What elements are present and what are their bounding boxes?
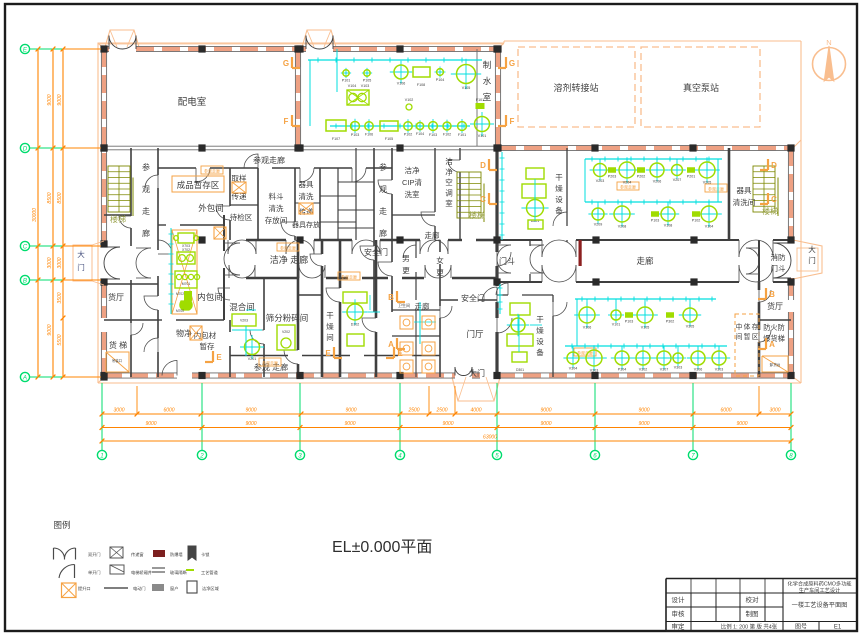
- svg-text:防火防: 防火防: [763, 323, 785, 332]
- svg-text:D: D: [771, 161, 777, 170]
- svg-text:V101: V101: [478, 134, 486, 138]
- svg-text:V203: V203: [596, 179, 604, 183]
- svg-text:净: 净: [445, 167, 453, 177]
- svg-text:比例 1: 200 第 版 共4张: 比例 1: 200 第 版 共4张: [721, 623, 778, 631]
- svg-text:配电室: 配电室: [178, 96, 207, 108]
- svg-text:门厅: 门厅: [466, 329, 484, 339]
- svg-text:间: 间: [326, 333, 334, 342]
- svg-text:电梯轿厢井: 电梯轿厢井: [131, 569, 152, 576]
- svg-text:8500: 8500: [57, 192, 63, 203]
- svg-text:外包间: 外包间: [198, 203, 224, 213]
- svg-text:大: 大: [77, 249, 85, 259]
- svg-text:器具: 器具: [737, 186, 752, 195]
- svg-text:F101: F101: [458, 133, 466, 137]
- svg-text:燥: 燥: [555, 184, 563, 193]
- svg-text:3500: 3500: [57, 292, 63, 303]
- svg-text:观: 观: [142, 185, 150, 194]
- svg-text:V206: V206: [653, 180, 661, 184]
- svg-text:待检区: 待检区: [230, 212, 253, 222]
- svg-text:F107: F107: [332, 137, 340, 141]
- svg-text:F108: F108: [417, 83, 425, 87]
- svg-text:空: 空: [445, 177, 453, 187]
- svg-text:9000: 9000: [638, 421, 649, 427]
- svg-text:单开门: 单开门: [88, 569, 101, 576]
- svg-text:M702: M702: [176, 292, 184, 296]
- svg-text:参: 参: [142, 162, 150, 172]
- svg-text:图例: 图例: [53, 520, 70, 530]
- svg-text:走: 走: [142, 207, 150, 216]
- svg-text:图号: 图号: [795, 624, 807, 631]
- svg-text:设: 设: [536, 336, 544, 346]
- svg-text:EL±0.000平面: EL±0.000平面: [332, 539, 432, 556]
- svg-text:参观走廊: 参观走廊: [262, 360, 278, 366]
- svg-text:走廊: 走廊: [425, 230, 440, 240]
- svg-text:E: E: [216, 353, 222, 362]
- svg-text:V104: V104: [705, 225, 713, 229]
- svg-text:清洗: 清洗: [299, 191, 314, 201]
- svg-text:参观走廊: 参观走廊: [280, 245, 296, 251]
- svg-text:防爆墙: 防爆墙: [170, 551, 183, 558]
- svg-text:V108: V108: [664, 224, 672, 228]
- svg-text:9000: 9000: [47, 324, 53, 335]
- svg-text:D102: D102: [351, 323, 360, 327]
- svg-text:G: G: [509, 59, 515, 68]
- svg-text:P103: P103: [651, 218, 659, 222]
- svg-text:男: 男: [402, 254, 410, 263]
- svg-text:干: 干: [555, 173, 563, 182]
- svg-text:混合间: 混合间: [229, 302, 255, 312]
- svg-text:一楼工艺设备平面图: 一楼工艺设备平面图: [792, 601, 848, 609]
- svg-text:V105: V105: [641, 326, 649, 330]
- svg-text:洁净: 洁净: [405, 165, 420, 175]
- svg-text:校对: 校对: [746, 595, 760, 604]
- svg-text:V103: V103: [361, 84, 369, 88]
- svg-text:观: 观: [379, 185, 387, 194]
- svg-text:V202: V202: [282, 330, 290, 334]
- svg-text:清洗间: 清洗间: [733, 197, 756, 207]
- svg-text:E: E: [325, 349, 331, 358]
- svg-text:9000: 9000: [57, 94, 63, 105]
- svg-text:F: F: [510, 117, 515, 126]
- svg-text:参观走廊: 参观走廊: [204, 168, 220, 174]
- svg-text:干: 干: [326, 311, 334, 320]
- svg-text:大: 大: [808, 244, 816, 254]
- svg-text:器具存放: 器具存放: [292, 220, 320, 229]
- svg-text:P201: P201: [687, 174, 695, 178]
- svg-text:7: 7: [691, 453, 695, 460]
- svg-text:卸货台: 卸货台: [770, 362, 781, 367]
- svg-text:F101: F101: [476, 98, 484, 102]
- svg-text:9000: 9000: [145, 421, 156, 427]
- svg-text:货厅: 货厅: [767, 301, 783, 311]
- svg-text:C: C: [23, 244, 28, 251]
- svg-text:2500: 2500: [407, 408, 419, 414]
- svg-text:P104: P104: [436, 78, 444, 82]
- svg-text:走廊: 走廊: [415, 301, 430, 311]
- svg-text:6000: 6000: [720, 408, 731, 414]
- svg-text:4: 4: [398, 453, 402, 460]
- svg-text:5500: 5500: [57, 334, 63, 345]
- svg-text:V207: V207: [673, 178, 681, 182]
- svg-text:F106: F106: [365, 133, 373, 137]
- svg-text:N: N: [826, 38, 831, 47]
- svg-text:参观走廊: 参观走廊: [253, 155, 285, 165]
- svg-text:V303: V303: [674, 366, 682, 370]
- svg-text:廊: 廊: [142, 228, 150, 238]
- svg-text:暂存: 暂存: [200, 341, 215, 351]
- svg-text:成品暂存区: 成品暂存区: [177, 180, 220, 190]
- svg-text:3000: 3000: [113, 408, 124, 414]
- svg-text:P105: P105: [363, 79, 371, 83]
- svg-text:P102: P102: [404, 133, 412, 137]
- svg-text:9000: 9000: [736, 421, 747, 427]
- svg-text:9000: 9000: [638, 408, 649, 414]
- svg-text:63000: 63000: [483, 435, 497, 441]
- svg-text:V305: V305: [686, 325, 694, 329]
- svg-text:工艺管道: 工艺管道: [201, 569, 219, 576]
- svg-text:料斗: 料斗: [269, 191, 284, 201]
- svg-text:P101: P101: [342, 79, 350, 83]
- svg-text:备: 备: [555, 205, 563, 215]
- svg-text:A: A: [769, 340, 775, 349]
- svg-text:审核: 审核: [672, 609, 686, 618]
- svg-text:存: 存: [752, 322, 759, 331]
- svg-text:E1: E1: [834, 625, 842, 631]
- svg-text:P102: P102: [692, 218, 700, 222]
- svg-text:参观走廊: 参观走廊: [341, 274, 357, 280]
- svg-text:电动门: 电动门: [133, 585, 146, 592]
- svg-text:吊装口: 吊装口: [112, 358, 122, 363]
- svg-text:A: A: [22, 375, 27, 382]
- svg-text:8: 8: [789, 453, 793, 460]
- svg-text:30000: 30000: [32, 208, 38, 222]
- svg-text:洁净 走廊: 洁净 走廊: [270, 254, 309, 265]
- svg-text:4000: 4000: [470, 408, 481, 414]
- svg-text:审定: 审定: [672, 622, 686, 631]
- svg-text:V208: V208: [618, 225, 626, 229]
- svg-text:内包间: 内包间: [197, 292, 223, 302]
- svg-text:洁净区域: 洁净区域: [202, 585, 220, 592]
- svg-text:女: 女: [436, 255, 444, 265]
- svg-text:V101: V101: [612, 323, 620, 327]
- svg-text:V102: V102: [405, 98, 413, 102]
- svg-text:V104: V104: [348, 84, 356, 88]
- svg-text:B: B: [769, 290, 775, 299]
- svg-text:9000: 9000: [442, 421, 453, 427]
- svg-text:B: B: [388, 293, 394, 302]
- svg-text:筛分粉碎间: 筛分粉碎间: [266, 313, 309, 323]
- svg-text:P202: P202: [637, 174, 645, 178]
- svg-text:门斗: 门斗: [499, 256, 515, 266]
- svg-text:V106: V106: [583, 326, 591, 330]
- svg-text:9000: 9000: [245, 421, 256, 427]
- svg-text:V205: V205: [703, 181, 711, 185]
- svg-text:溶剂转接站: 溶剂转接站: [553, 82, 598, 93]
- svg-text:1: 1: [100, 453, 103, 460]
- svg-text:制: 制: [483, 60, 492, 70]
- svg-text:楼梯: 楼梯: [762, 206, 778, 216]
- svg-text:消防: 消防: [771, 252, 786, 262]
- svg-text:安全门: 安全门: [461, 293, 485, 303]
- svg-text:V304: V304: [569, 367, 577, 371]
- svg-text:廊: 廊: [379, 228, 387, 238]
- svg-text:设计: 设计: [672, 595, 686, 604]
- svg-text:货厅: 货厅: [108, 292, 124, 302]
- svg-text:V307: V307: [660, 368, 668, 372]
- svg-text:走廊: 走廊: [636, 256, 654, 266]
- svg-text:V302: V302: [639, 368, 647, 372]
- svg-text:9000: 9000: [47, 94, 53, 105]
- svg-text:V209: V209: [594, 223, 602, 227]
- svg-text:传递窗: 传递窗: [131, 551, 144, 558]
- svg-text:参: 参: [379, 162, 387, 172]
- svg-text:卫生间: 卫生间: [398, 302, 410, 308]
- svg-text:M701: M701: [182, 282, 191, 286]
- svg-text:3: 3: [298, 453, 302, 460]
- svg-text:P103: P103: [625, 319, 633, 323]
- svg-text:清洗: 清洗: [269, 203, 284, 213]
- svg-text:D301: D301: [516, 368, 524, 372]
- svg-text:V204: V204: [623, 181, 631, 185]
- svg-text:区: 区: [752, 333, 759, 341]
- svg-text:门: 门: [77, 263, 85, 272]
- svg-text:P304: P304: [618, 368, 626, 372]
- svg-text:V201: V201: [248, 357, 256, 361]
- svg-text:提升口: 提升口: [78, 585, 91, 592]
- svg-text:室: 室: [445, 198, 453, 208]
- svg-text:设: 设: [555, 194, 563, 204]
- svg-text:生产车间工艺设计: 生产车间工艺设计: [799, 586, 841, 594]
- svg-text:器具: 器具: [299, 180, 314, 189]
- svg-text:B: B: [23, 278, 27, 285]
- svg-text:M700: M700: [176, 309, 184, 313]
- svg-text:化学合成原料药CMO多功能: 化学合成原料药CMO多功能: [788, 580, 852, 588]
- svg-text:中: 中: [736, 322, 743, 331]
- svg-text:9000: 9000: [540, 408, 551, 414]
- svg-text:门: 门: [808, 256, 816, 265]
- svg-text:制图: 制图: [746, 609, 759, 618]
- svg-text:更: 更: [402, 266, 410, 275]
- svg-text:洁: 洁: [445, 156, 453, 166]
- svg-text:9000: 9000: [345, 408, 356, 414]
- svg-text:F103: F103: [429, 133, 437, 137]
- svg-text:货 梯: 货 梯: [109, 340, 127, 350]
- svg-text:大门: 大门: [469, 368, 485, 378]
- svg-text:V105: V105: [462, 86, 470, 90]
- svg-text:窗户: 窗户: [170, 585, 178, 592]
- svg-text:燥: 燥: [536, 326, 544, 335]
- svg-text:5: 5: [495, 453, 499, 460]
- svg-text:V303: V303: [590, 369, 598, 373]
- svg-text:V203: V203: [240, 319, 248, 323]
- svg-text:C: C: [771, 195, 777, 204]
- svg-text:P302: P302: [666, 319, 674, 323]
- svg-text:F104: F104: [416, 132, 424, 136]
- svg-text:调: 调: [445, 189, 453, 198]
- svg-text:9000: 9000: [245, 408, 256, 414]
- svg-text:D: D: [480, 161, 486, 170]
- svg-text:卡锁: 卡锁: [201, 551, 210, 558]
- svg-text:8500: 8500: [47, 192, 53, 203]
- svg-text:P103: P103: [351, 133, 359, 137]
- svg-text:走: 走: [379, 207, 387, 216]
- svg-text:楼梯: 楼梯: [469, 210, 485, 220]
- svg-text:6000: 6000: [163, 408, 174, 414]
- svg-text:3000: 3000: [47, 257, 53, 268]
- svg-text:玻璃隔断: 玻璃隔断: [170, 569, 188, 576]
- svg-text:参观走廊: 参观走廊: [708, 186, 724, 192]
- svg-text:X702: X702: [182, 248, 190, 252]
- svg-text:间: 间: [736, 333, 743, 341]
- svg-text:体: 体: [744, 322, 751, 331]
- svg-text:真空泵站: 真空泵站: [683, 82, 719, 93]
- svg-text:F: F: [284, 117, 289, 126]
- svg-text:C: C: [480, 195, 486, 204]
- svg-text:存放间: 存放间: [265, 215, 288, 225]
- svg-text:楼梯: 楼梯: [110, 214, 126, 224]
- svg-text:暂: 暂: [744, 332, 751, 341]
- svg-text:3000: 3000: [57, 257, 63, 268]
- svg-text:门斗: 门斗: [771, 264, 786, 273]
- svg-text:洗室: 洗室: [405, 189, 420, 199]
- svg-text:V306: V306: [694, 368, 702, 372]
- svg-text:安全门: 安全门: [364, 247, 388, 257]
- svg-text:双开门: 双开门: [88, 551, 101, 558]
- svg-text:D: D: [23, 146, 28, 153]
- svg-text:水: 水: [483, 76, 492, 86]
- svg-text:F102: F102: [443, 133, 451, 137]
- svg-text:V303: V303: [715, 368, 723, 372]
- svg-text:更: 更: [436, 268, 444, 277]
- svg-text:2: 2: [199, 453, 204, 460]
- svg-text:燥: 燥: [326, 322, 334, 331]
- svg-text:干: 干: [536, 315, 544, 324]
- svg-text:6: 6: [593, 453, 597, 460]
- svg-text:G: G: [283, 59, 289, 68]
- svg-text:F105: F105: [385, 137, 393, 141]
- svg-text:CIP清: CIP清: [402, 177, 423, 187]
- svg-text:V106: V106: [397, 82, 405, 86]
- svg-text:备: 备: [536, 347, 544, 357]
- svg-text:9000: 9000: [540, 421, 551, 427]
- svg-text:9000: 9000: [344, 421, 355, 427]
- svg-text:3000: 3000: [769, 408, 780, 414]
- svg-text:P203: P203: [608, 174, 616, 178]
- svg-text:2500: 2500: [435, 408, 447, 414]
